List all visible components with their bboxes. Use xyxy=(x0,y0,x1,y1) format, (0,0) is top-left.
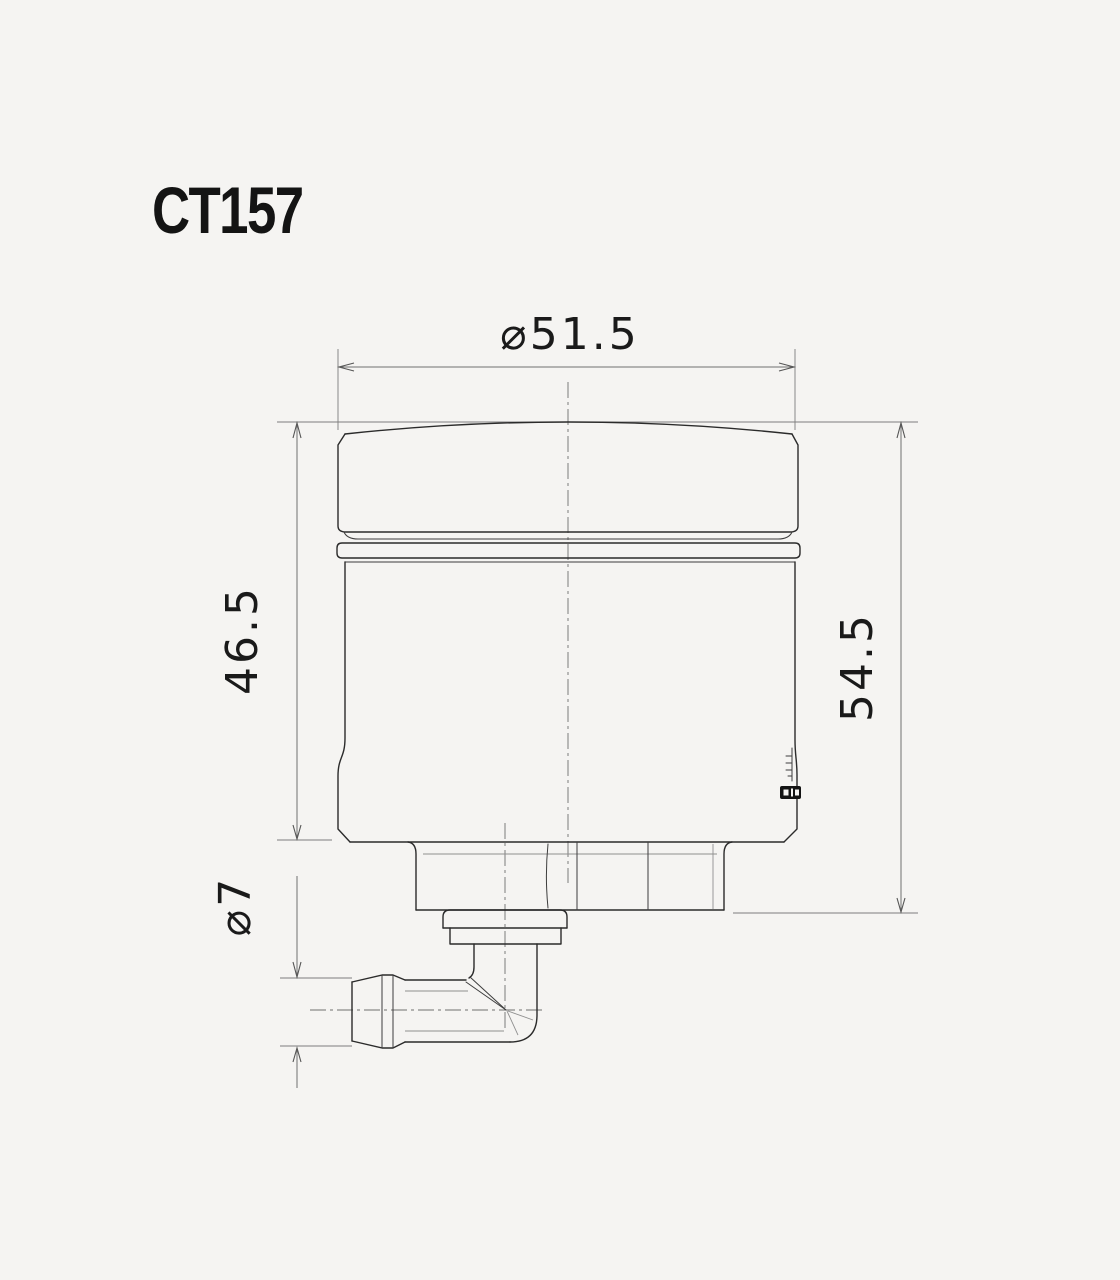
cap-diameter-value: ⌀51.5 xyxy=(500,309,639,360)
dimension-body-height: 46.5 xyxy=(217,423,301,839)
drawing-sheet: CT157 ⌀51.5 4 xyxy=(0,0,1120,1280)
elbow-inner-edge xyxy=(469,944,474,978)
barb-bottom-edge xyxy=(352,1041,405,1048)
outlet-diameter-value: ⌀7 xyxy=(210,876,261,936)
technical-drawing: ⌀51.5 46.5 54.5 ⌀7 xyxy=(0,0,1120,1280)
base-nut xyxy=(408,842,732,910)
mounting-ring xyxy=(337,543,800,558)
level-tick-icon xyxy=(786,756,792,776)
reservoir-body xyxy=(338,562,801,842)
hose-barb xyxy=(352,975,405,1048)
body-left-edge xyxy=(338,562,350,842)
centerlines xyxy=(310,382,568,1028)
body-right-edge xyxy=(784,562,797,842)
elbow-miter-line-1 xyxy=(470,977,506,1010)
elbow-miter-line-2 xyxy=(466,982,506,1010)
barb-top-edge xyxy=(352,975,405,982)
cap-dome-arc xyxy=(345,422,792,434)
dimension-total-height: 54.5 xyxy=(832,423,905,912)
total-height-value: 54.5 xyxy=(832,612,883,722)
ring-outline xyxy=(337,543,800,558)
elbow-miter-line-4 xyxy=(508,1011,533,1020)
dimension-outlet-diameter: ⌀7 xyxy=(210,876,301,1088)
elbow-fitting xyxy=(405,944,537,1042)
base-right-edge xyxy=(724,842,732,910)
brand-logo xyxy=(780,786,801,799)
extension-lines xyxy=(277,349,918,1046)
step2-outline xyxy=(450,928,561,944)
logo-detail xyxy=(795,790,799,796)
logo-detail xyxy=(791,789,793,797)
logo-detail xyxy=(784,790,789,796)
base-left-edge xyxy=(408,842,416,910)
elbow-miter-line-3 xyxy=(507,1011,518,1035)
dimension-cap-diameter: ⌀51.5 xyxy=(339,309,794,371)
level-marks xyxy=(786,748,792,781)
body-height-value: 46.5 xyxy=(217,585,268,695)
